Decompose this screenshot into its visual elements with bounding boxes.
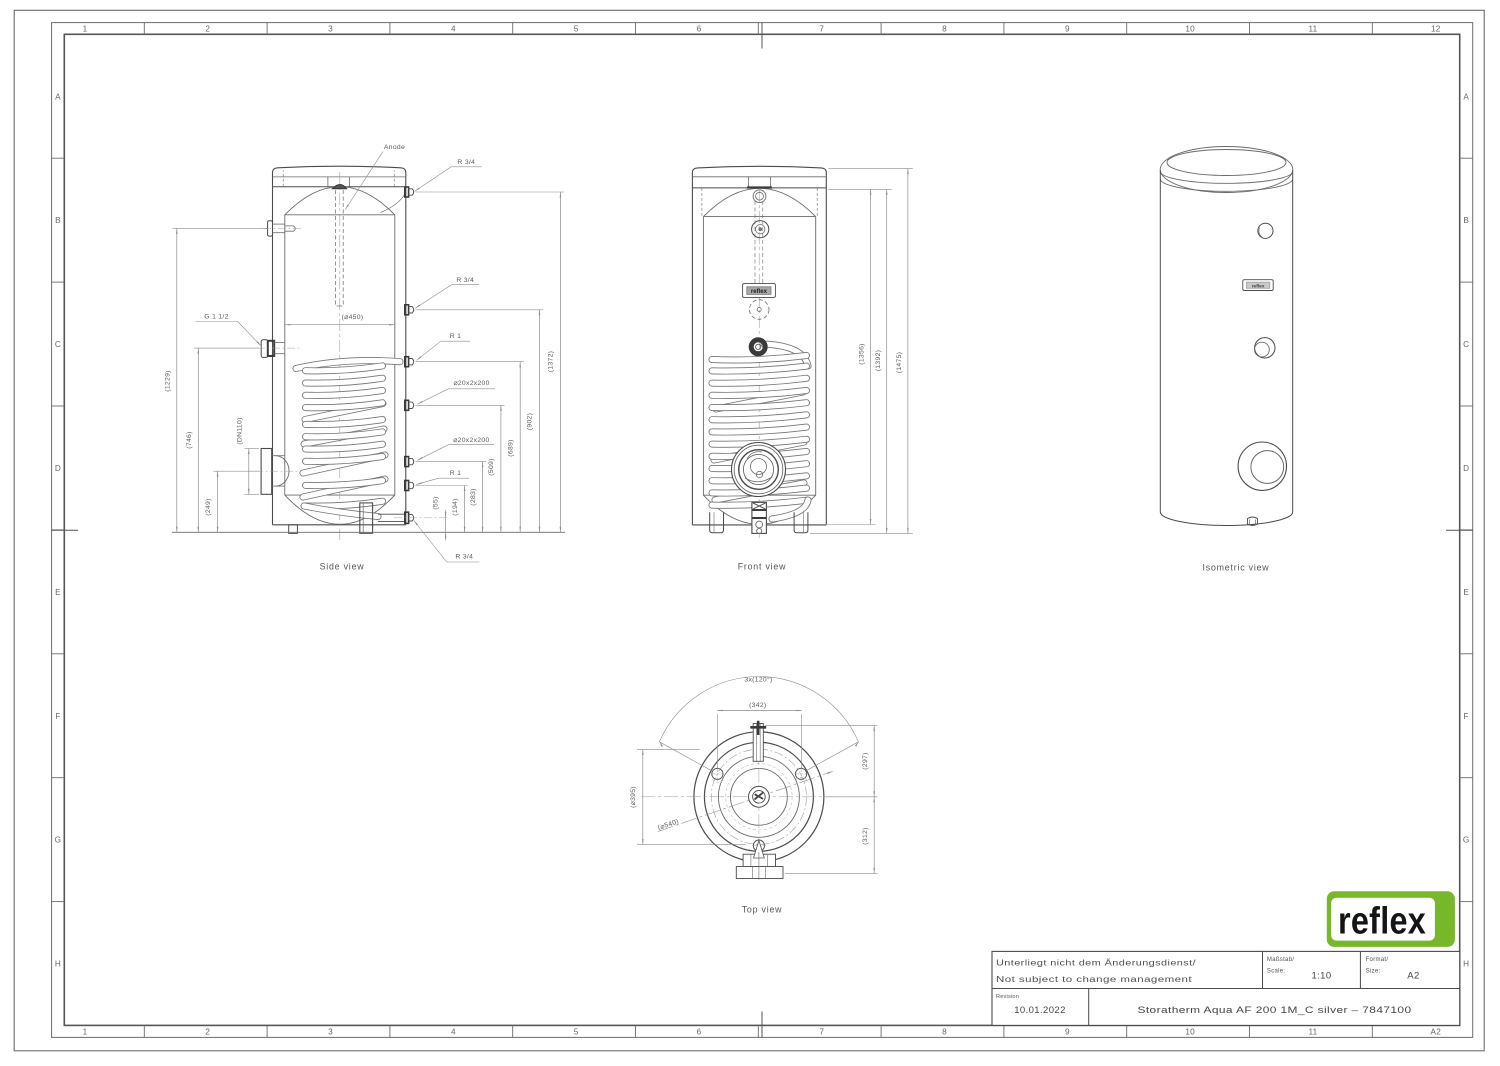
svg-text:reflex: reflex <box>1338 901 1426 943</box>
svg-text:(283): (283) <box>470 488 477 505</box>
svg-text:Isometric view: Isometric view <box>1203 563 1270 573</box>
svg-text:⌀20x2x200: ⌀20x2x200 <box>453 437 489 444</box>
svg-text:A: A <box>55 92 61 101</box>
svg-text:3: 3 <box>328 25 333 34</box>
svg-text:G: G <box>1463 836 1470 845</box>
svg-text:(55): (55) <box>432 496 439 509</box>
svg-text:R 1: R 1 <box>450 333 461 340</box>
svg-text:(509): (509) <box>488 458 495 475</box>
svg-text:(194): (194) <box>452 498 459 515</box>
svg-text:H: H <box>1463 960 1469 969</box>
svg-text:E: E <box>1463 588 1469 597</box>
svg-text:4: 4 <box>451 1028 456 1037</box>
svg-text:(342): (342) <box>749 702 766 709</box>
svg-text:1:10: 1:10 <box>1311 971 1331 982</box>
svg-text:(1392): (1392) <box>875 350 882 371</box>
svg-text:9: 9 <box>1065 1028 1070 1037</box>
svg-text:G 1 1/2: G 1 1/2 <box>204 313 228 320</box>
svg-text:Front view: Front view <box>738 562 787 572</box>
svg-text:3: 3 <box>328 1028 333 1037</box>
svg-text:Scale:: Scale: <box>1267 969 1286 975</box>
svg-text:Size:: Size: <box>1366 969 1381 975</box>
svg-text:8: 8 <box>942 1028 947 1037</box>
svg-text:Anode: Anode <box>384 144 405 151</box>
svg-text:Not subject to change manageme: Not subject to change management <box>996 975 1193 984</box>
svg-text:10: 10 <box>1185 25 1195 34</box>
svg-text:10: 10 <box>1185 1028 1195 1037</box>
svg-text:2: 2 <box>205 25 210 34</box>
svg-text:(DN110): (DN110) <box>236 417 243 444</box>
svg-text:(746): (746) <box>186 431 193 448</box>
svg-text:C: C <box>55 340 61 349</box>
svg-text:G: G <box>55 836 62 845</box>
svg-text:(⌀395): (⌀395) <box>630 786 637 808</box>
svg-text:F: F <box>1464 712 1469 721</box>
svg-text:Maßstab/: Maßstab/ <box>1267 957 1294 963</box>
svg-text:B: B <box>1463 216 1469 225</box>
svg-text:(312): (312) <box>862 827 869 844</box>
svg-text:(⌀450): (⌀450) <box>342 314 364 321</box>
svg-text:(689): (689) <box>507 439 514 456</box>
svg-text:H: H <box>55 960 61 969</box>
svg-text:6: 6 <box>697 1028 702 1037</box>
svg-text:(297): (297) <box>862 752 869 769</box>
svg-text:R 3/4: R 3/4 <box>457 159 475 166</box>
svg-text:1: 1 <box>83 1028 88 1037</box>
svg-text:5: 5 <box>574 1028 579 1037</box>
svg-text:reflex: reflex <box>751 289 768 295</box>
svg-text:12: 12 <box>1431 25 1441 34</box>
svg-text:A2: A2 <box>1430 1028 1441 1037</box>
svg-text:(1229): (1229) <box>165 370 172 391</box>
svg-text:2: 2 <box>205 1028 210 1037</box>
svg-text:C: C <box>1463 340 1469 349</box>
svg-text:7: 7 <box>819 1028 824 1037</box>
svg-text:Storatherm Aqua AF 200 1M_C si: Storatherm Aqua AF 200 1M_C silver – 784… <box>1138 1005 1412 1015</box>
svg-text:8: 8 <box>942 25 947 34</box>
svg-text:D: D <box>1463 464 1469 473</box>
svg-text:(249): (249) <box>205 498 212 515</box>
svg-text:10.01.2022: 10.01.2022 <box>1014 1005 1066 1016</box>
svg-text:6: 6 <box>697 25 702 34</box>
svg-text:R 3/4: R 3/4 <box>455 554 473 561</box>
svg-text:(902): (902) <box>527 413 534 430</box>
svg-text:D: D <box>55 464 61 473</box>
svg-text:Format/: Format/ <box>1366 957 1389 963</box>
svg-text:Unterliegt nicht dem Änderungs: Unterliegt nicht dem Änderungsdienst/ <box>996 958 1197 967</box>
svg-text:11: 11 <box>1308 1028 1317 1037</box>
svg-text:9: 9 <box>1065 25 1070 34</box>
svg-text:(1372): (1372) <box>547 351 554 372</box>
svg-text:E: E <box>55 588 61 597</box>
svg-text:7: 7 <box>819 25 824 34</box>
svg-text:⌀20x2x200: ⌀20x2x200 <box>453 380 489 387</box>
svg-text:1: 1 <box>83 25 88 34</box>
svg-text:A2: A2 <box>1407 971 1419 982</box>
svg-text:Revision: Revision <box>996 994 1019 1000</box>
svg-text:5: 5 <box>574 25 579 34</box>
svg-text:11: 11 <box>1308 25 1317 34</box>
svg-text:Top view: Top view <box>742 905 783 915</box>
svg-text:reflex: reflex <box>1252 283 1265 289</box>
svg-text:4: 4 <box>451 25 456 34</box>
svg-text:(1356): (1356) <box>859 343 866 364</box>
svg-text:B: B <box>55 216 61 225</box>
svg-text:3x(120°): 3x(120°) <box>744 675 772 683</box>
svg-text:R 1: R 1 <box>450 470 461 477</box>
svg-text:(1475): (1475) <box>896 352 903 373</box>
svg-text:A: A <box>1463 92 1469 101</box>
svg-text:R 3/4: R 3/4 <box>456 277 474 284</box>
svg-text:F: F <box>55 712 60 721</box>
svg-text:Side view: Side view <box>320 562 365 572</box>
